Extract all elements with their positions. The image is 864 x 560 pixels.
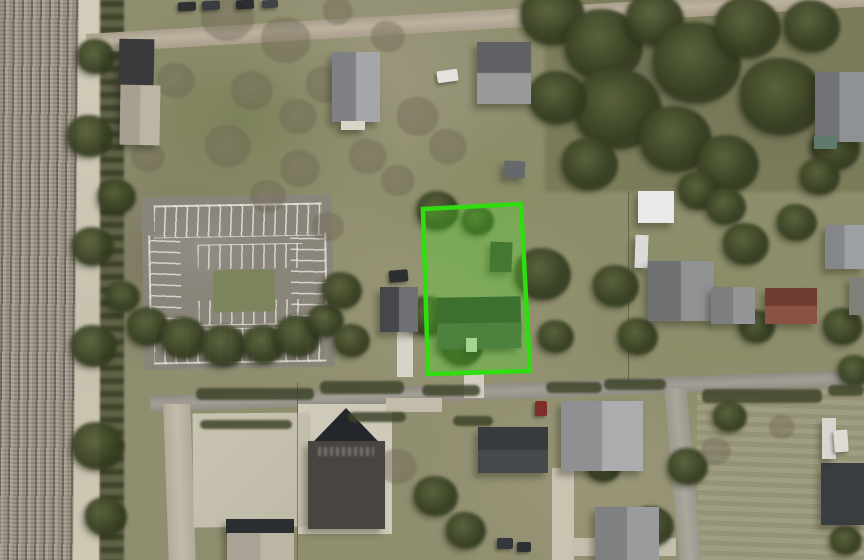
highlighted-parcel-boundary[interactable] [423,204,530,374]
parcel-highlight-overlay[interactable] [0,0,864,560]
aerial-map-canvas[interactable] [0,0,864,560]
